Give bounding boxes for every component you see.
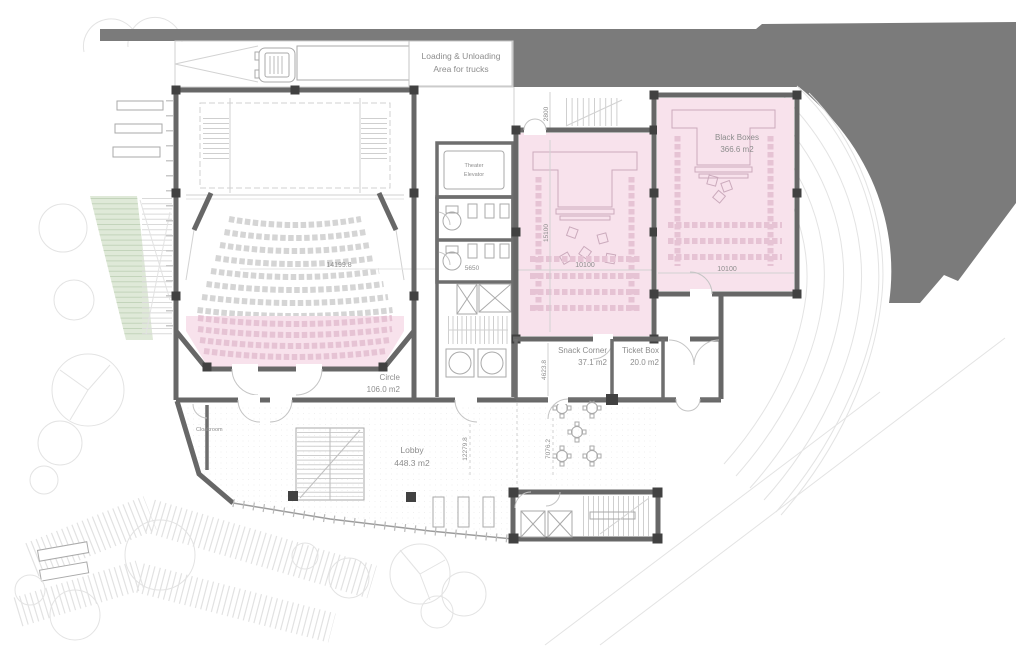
circle-area: 106.0 m2 xyxy=(367,385,401,394)
black-box-small: 10100 15100 2800 xyxy=(512,87,659,344)
circle-seating xyxy=(186,316,404,367)
black-boxes-hall: Black Boxes 366.6 m2 10100 xyxy=(650,91,802,400)
ticket-box-label: Ticket Box xyxy=(622,346,659,355)
dim-snack-height: 4623.8 xyxy=(541,360,548,380)
south-core xyxy=(509,488,663,544)
dim-wc-width: 5650 xyxy=(465,265,480,272)
truck-trailer xyxy=(297,46,409,80)
column xyxy=(406,492,416,502)
dim-theater-width: 14199.8 xyxy=(326,262,351,269)
service-lifts xyxy=(446,349,506,377)
lobby-area: 448.3 m2 xyxy=(394,458,430,468)
loading-area: Loading & Unloading Area for trucks xyxy=(175,41,513,87)
theater-elevator-line1: Theater xyxy=(465,163,484,169)
black-boxes-label: Black Boxes xyxy=(715,133,759,142)
columns xyxy=(509,488,663,544)
dim-dock-depth: 2800 xyxy=(543,106,550,121)
dim-black-box-height: 15100 xyxy=(543,224,550,242)
circle-label: Circle xyxy=(380,373,401,382)
site-wall-bar xyxy=(100,29,515,41)
black-boxes-area: 366.6 m2 xyxy=(720,145,754,154)
snack-corner-area: 37.1 m2 xyxy=(578,358,607,367)
ticket-box-area: 20.0 m2 xyxy=(630,358,659,367)
wc-fixtures xyxy=(443,204,509,270)
lobby-label: Lobby xyxy=(400,445,424,455)
dim-black-boxes-width: 10100 xyxy=(717,266,737,273)
loading-label-line2: Area for trucks xyxy=(433,64,488,74)
truck xyxy=(255,46,409,82)
dim-black-box-width: 10100 xyxy=(575,262,595,269)
snack-corner-label: Snack Corner xyxy=(558,346,607,355)
dock-leveler xyxy=(175,64,258,82)
planter xyxy=(115,124,162,133)
south-core-walls xyxy=(513,492,658,539)
main-theater: 14199.8 Circle xyxy=(113,86,437,401)
stage xyxy=(186,98,404,199)
green-stair-wedge xyxy=(90,196,170,340)
dim-lobby-east-depth: 7076.2 xyxy=(545,439,552,459)
column xyxy=(288,491,298,501)
service-core: Theater Elevator 5650 xyxy=(437,143,513,397)
cloakroom-label: Cloakroom xyxy=(196,427,223,433)
theater-elevator-line2: Elevator xyxy=(464,172,484,178)
planter xyxy=(113,147,160,157)
column xyxy=(606,394,618,405)
dock-leveler xyxy=(175,46,258,64)
planter xyxy=(117,101,163,110)
floor-plan-canvas: Loading & Unloading Area for trucks xyxy=(0,0,1024,646)
floor-plan-drawing: Loading & Unloading Area for trucks xyxy=(0,0,1024,646)
south-core-elevators xyxy=(521,511,572,537)
elevators xyxy=(457,284,511,314)
dim-lobby-depth: 12279.8 xyxy=(462,437,469,461)
planter xyxy=(38,542,89,562)
loading-label-line1: Loading & Unloading xyxy=(422,51,501,61)
auditorium-seating xyxy=(198,219,393,316)
